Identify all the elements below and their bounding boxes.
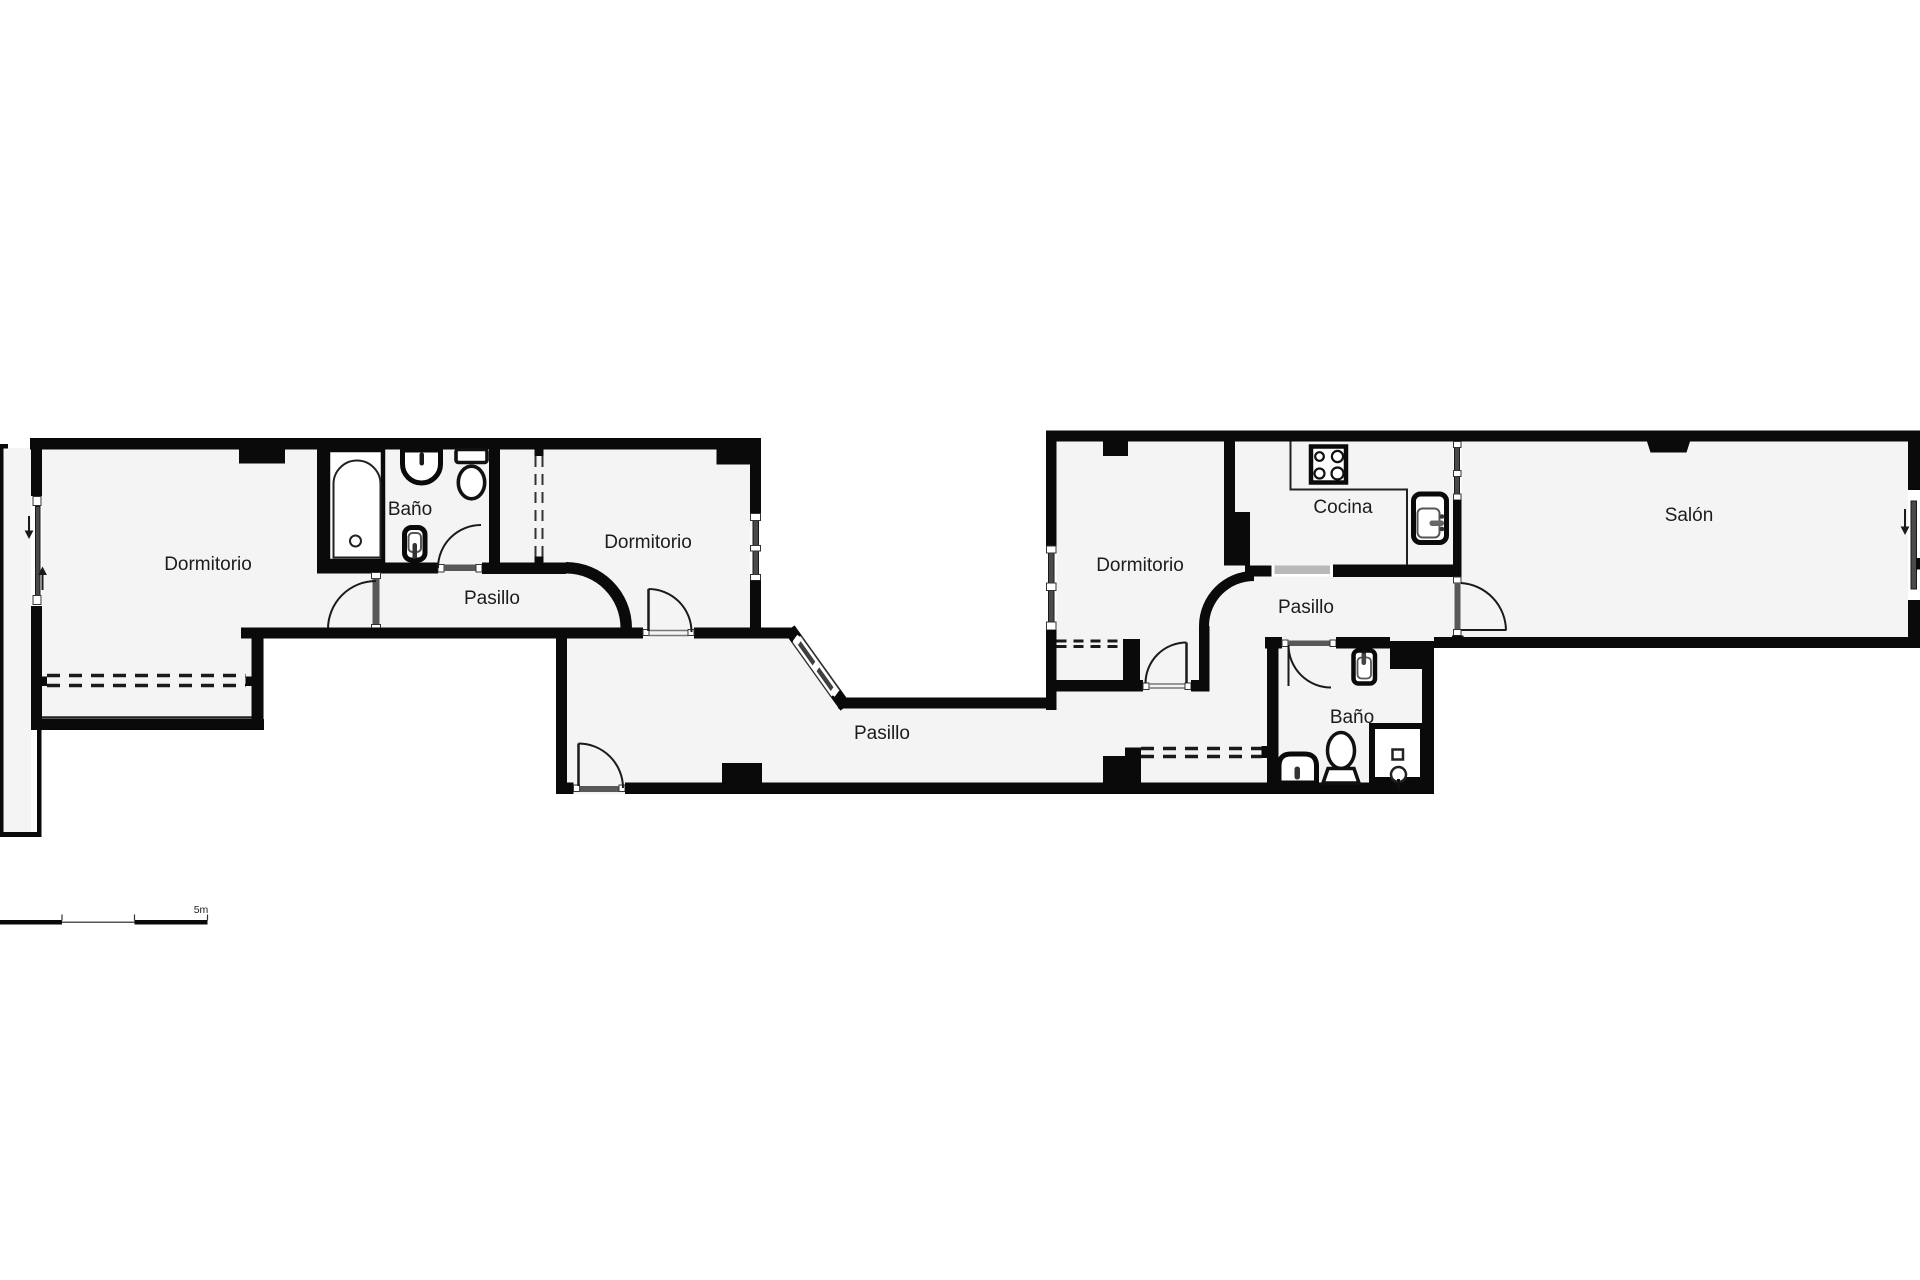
svg-text:Dormitorio: Dormitorio (604, 532, 692, 553)
svg-text:Salón: Salón (1665, 505, 1714, 526)
svg-text:Pasillo: Pasillo (854, 723, 910, 744)
svg-text:Baño: Baño (388, 499, 432, 520)
svg-text:Pasillo: Pasillo (1278, 597, 1334, 618)
svg-text:Dormitorio: Dormitorio (1096, 555, 1184, 576)
svg-text:Dormitorio: Dormitorio (164, 554, 252, 575)
svg-text:Cocina: Cocina (1313, 497, 1373, 518)
svg-text:Pasillo: Pasillo (464, 588, 520, 609)
svg-text:5m: 5m (194, 904, 209, 916)
svg-text:Baño: Baño (1330, 707, 1374, 728)
